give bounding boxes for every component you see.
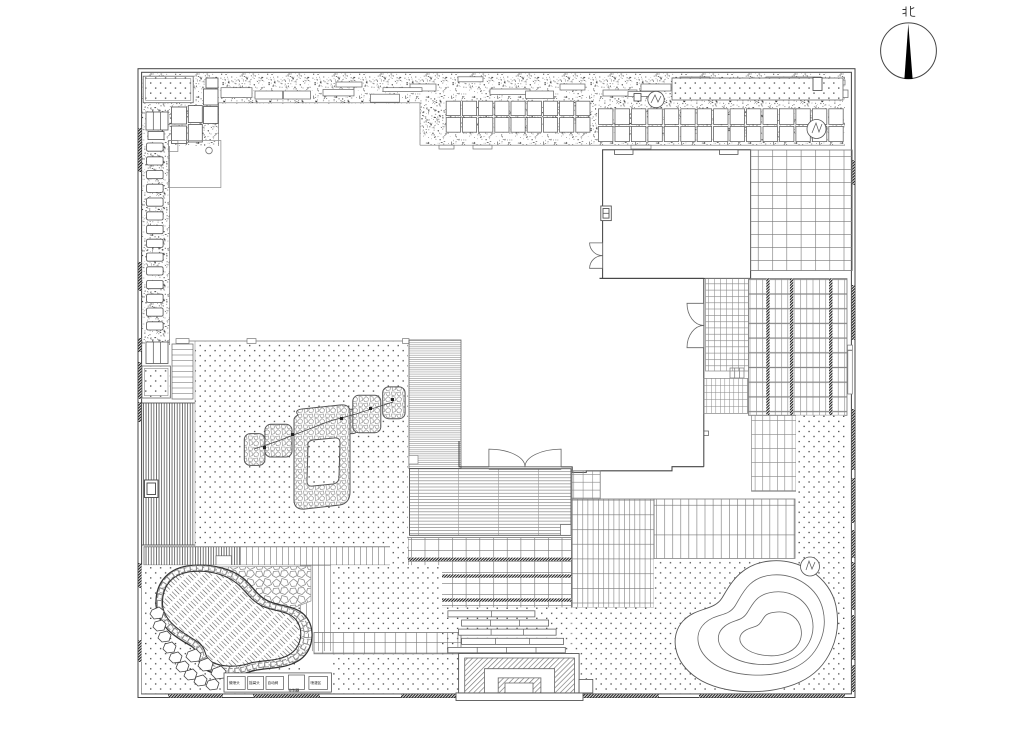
svg-text:微喷头: 微喷头 xyxy=(229,680,240,685)
svg-text:喷灌区: 喷灌区 xyxy=(311,680,322,685)
svg-text:摇臂头: 摇臂头 xyxy=(249,680,260,685)
svg-text:控制器: 控制器 xyxy=(289,688,300,693)
svg-text:自动阀: 自动阀 xyxy=(268,680,279,685)
